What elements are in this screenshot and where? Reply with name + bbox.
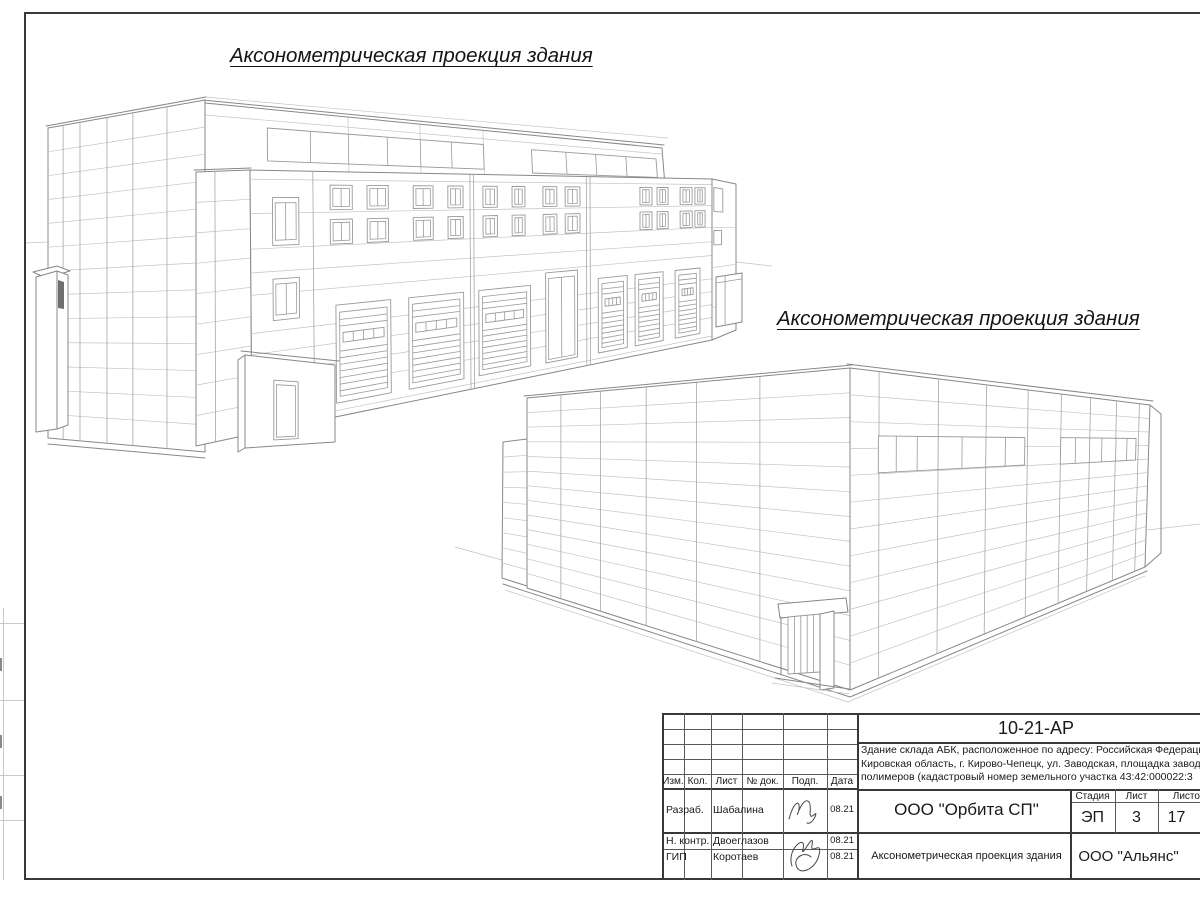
design-org: ООО "Орбита СП"	[863, 796, 1070, 824]
client-company: ООО "Альянс"	[1070, 833, 1187, 880]
rule-line	[0, 735, 2, 748]
signature-nkontr-gip	[791, 840, 820, 870]
rule-line	[857, 713, 859, 880]
row-name-razrab: Шабалина	[713, 802, 764, 818]
sheets-header: Листов	[1158, 790, 1200, 803]
object-address-line3: полимеров (кадастровый номер земельного …	[861, 771, 1193, 784]
view-title-2: Аксонометрическая проекция здания	[777, 307, 1140, 331]
drawing-sheet: Аксонометрическая проекция здания Аксоно…	[0, 0, 1200, 900]
signatures	[783, 789, 827, 880]
rule-line	[24, 12, 1200, 14]
stage-header: Стадия	[1070, 790, 1115, 803]
row-role-razrab: Разраб.	[666, 802, 704, 818]
rule-line	[24, 12, 26, 880]
building-1-wireframe	[24, 97, 1200, 702]
sheets-total: 17	[1158, 803, 1195, 833]
sheet-title: Аксонометрическая проекция здания	[863, 833, 1070, 880]
rule-line	[662, 744, 858, 745]
rule-line	[0, 658, 2, 671]
doc-code: 10-21-АР	[936, 715, 1136, 742]
row-name-nkontr: Двоеглазов	[713, 833, 769, 849]
row-role-gip: ГИП	[666, 849, 687, 865]
row-date-nkontr: 08.21	[827, 833, 857, 849]
col-header-podp: Подп.	[783, 774, 827, 789]
object-address-line1: Здание склада АБК, расположенное по адре…	[861, 744, 1200, 757]
col-header-list: Лист	[711, 774, 742, 789]
row-date-gip: 08.21	[827, 849, 857, 865]
signature-razrab	[789, 801, 816, 823]
sheet-header: Лист	[1115, 790, 1158, 803]
stage-value: ЭП	[1070, 803, 1115, 833]
col-header-kol: Кол.	[684, 774, 711, 789]
rule-line	[3, 608, 4, 880]
col-header-izm: Изм.	[662, 774, 684, 789]
rule-line	[662, 759, 858, 760]
sheet-number: 3	[1115, 803, 1158, 833]
row-date-razrab: 08.21	[827, 802, 857, 818]
rule-line	[711, 713, 712, 880]
col-header-data: Дата	[827, 774, 857, 789]
rule-line	[0, 796, 2, 809]
rule-line	[662, 713, 664, 880]
row-name-gip: Коротаев	[713, 849, 758, 865]
view-title-1: Аксонометрическая проекция здания	[230, 44, 593, 68]
col-header-doc: № док.	[742, 774, 783, 789]
object-address-line2: Кировская область, г. Кирово-Чепецк, ул.…	[861, 758, 1200, 771]
row-role-nkontr: Н. контр.	[666, 833, 709, 849]
rule-line	[662, 729, 858, 730]
